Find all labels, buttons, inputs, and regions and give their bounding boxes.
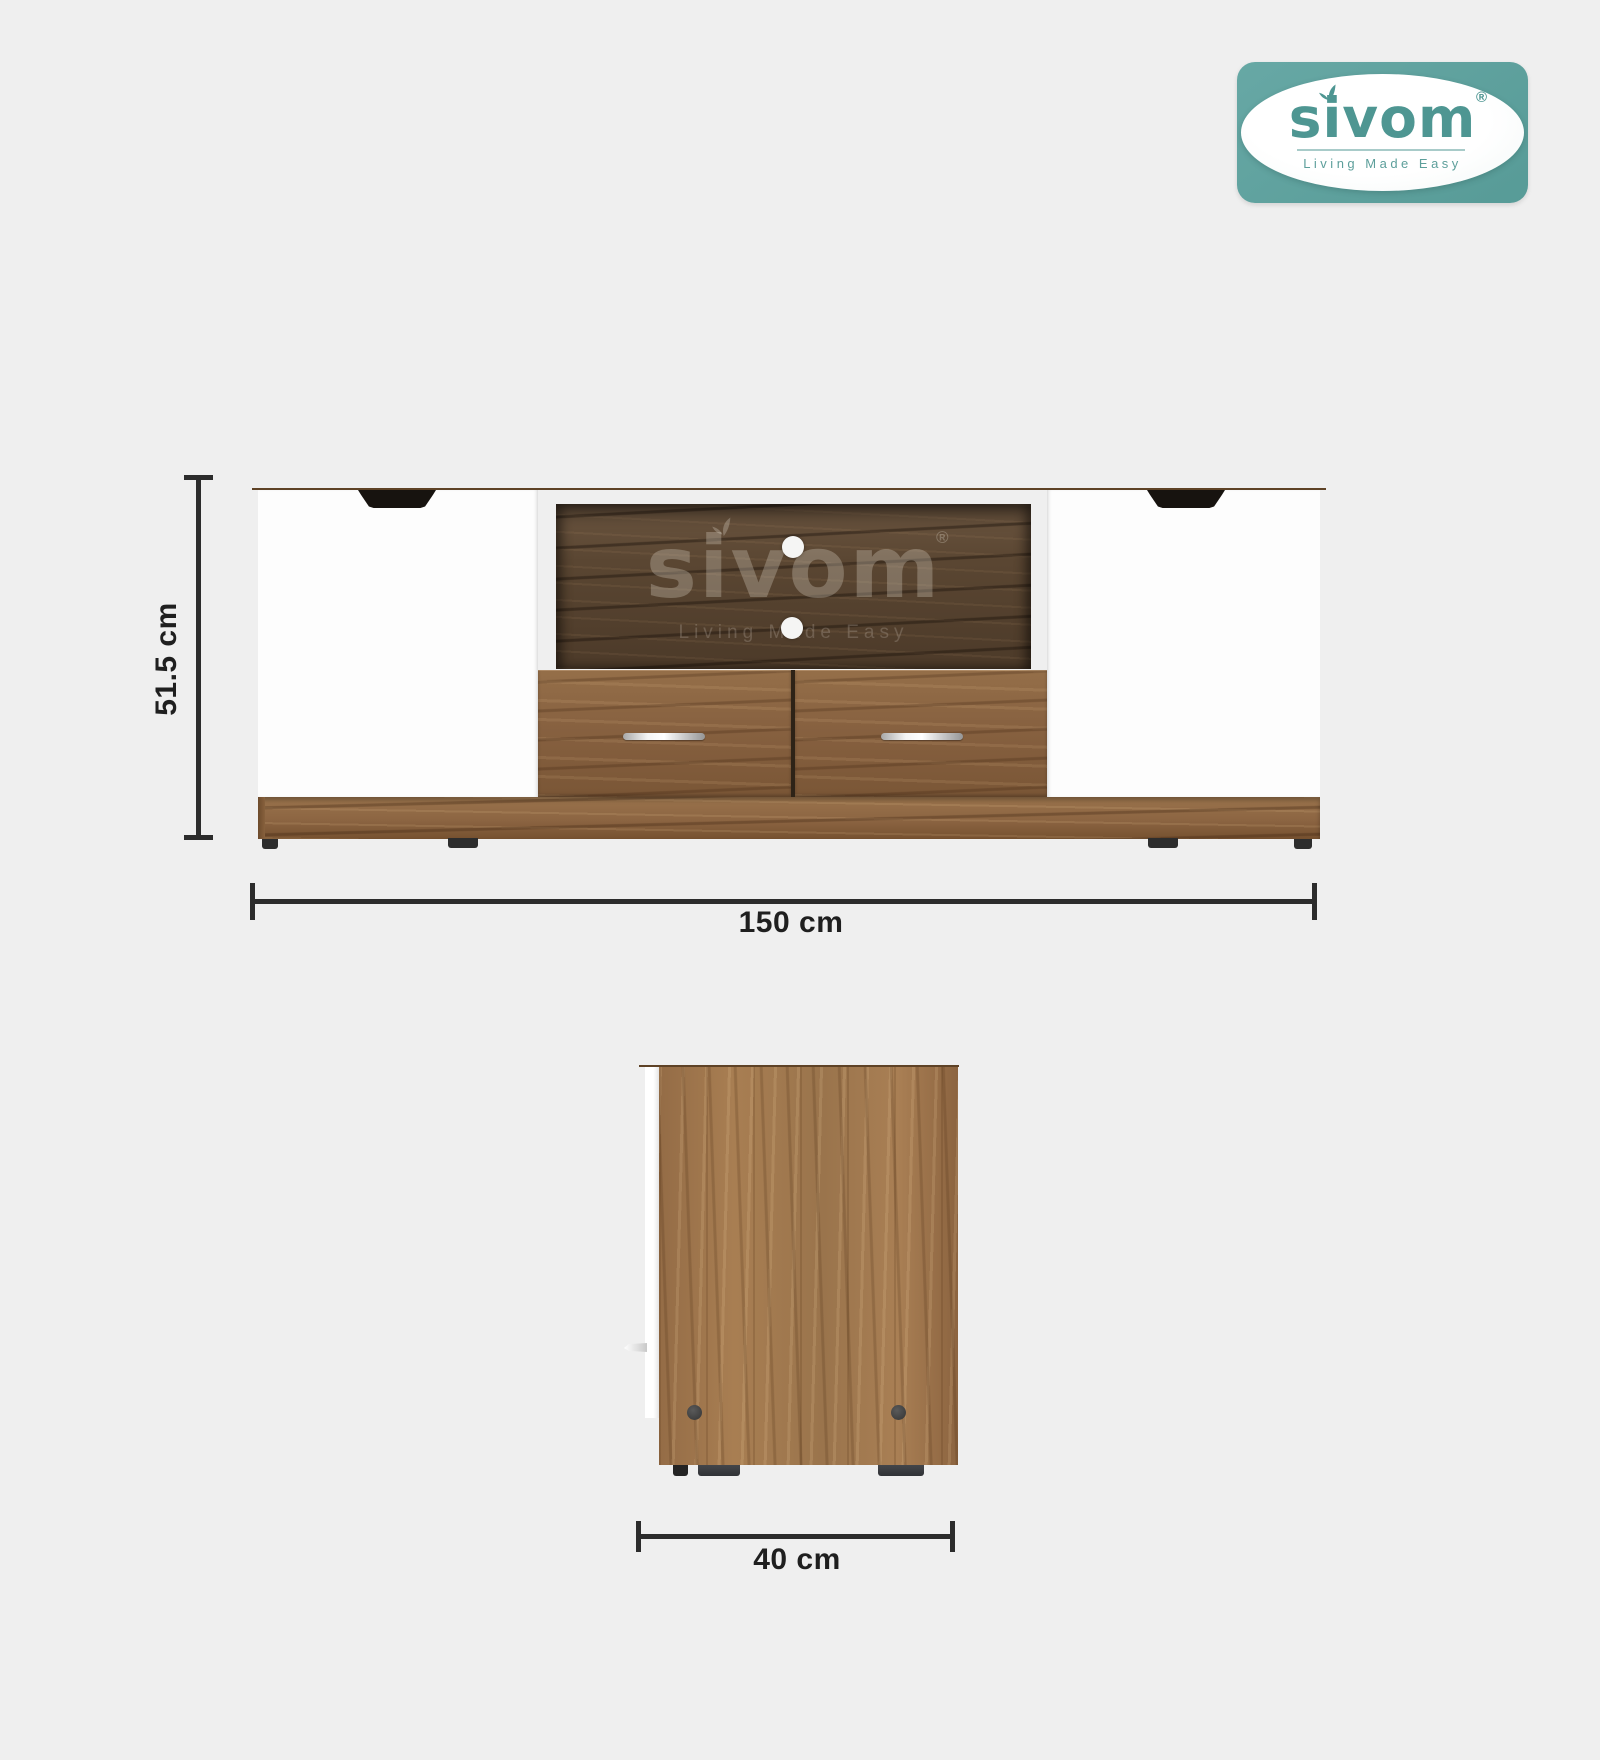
side-foot-2 xyxy=(698,1465,740,1476)
depth-dimension-cap-right xyxy=(950,1521,955,1552)
tv-unit-top-panel xyxy=(252,473,1326,490)
side-panel xyxy=(659,1067,958,1465)
shelf-watermark-registered: ® xyxy=(936,528,949,548)
front-foot-3 xyxy=(1148,838,1178,848)
side-foot-3 xyxy=(878,1465,924,1476)
side-view: 40 cm xyxy=(0,1000,1600,1700)
side-top-panel xyxy=(639,1054,959,1067)
watermark-leaf-icon xyxy=(709,515,735,547)
height-dimension-line xyxy=(196,477,201,838)
open-shelf: sivom ® Living Made Easy xyxy=(556,504,1031,669)
side-foot-1 xyxy=(673,1465,688,1476)
shelf-watermark-brand: sivom xyxy=(556,518,1031,618)
depth-dimension-label: 40 cm xyxy=(697,1543,897,1577)
front-foot-2 xyxy=(448,838,478,848)
left-door xyxy=(258,490,538,797)
plinth-left-edge xyxy=(258,797,265,839)
right-door xyxy=(1047,490,1320,797)
side-door-edge xyxy=(645,1067,659,1418)
right-door-handle-cutout xyxy=(1147,490,1225,508)
drawer-right-handle xyxy=(881,733,963,740)
depth-dimension-cap-left xyxy=(636,1521,641,1552)
cable-hole-top xyxy=(782,536,804,558)
front-foot-1 xyxy=(262,839,278,849)
drawer-left-handle xyxy=(623,733,705,740)
depth-dimension-line xyxy=(638,1534,955,1539)
width-dimension-cap-left xyxy=(250,883,255,920)
height-dimension-cap-bottom xyxy=(184,835,213,840)
width-dimension-cap-right xyxy=(1312,883,1317,920)
height-dimension-label: 51.5 cm xyxy=(150,569,184,749)
side-handle-profile xyxy=(624,1343,647,1352)
left-door-handle-cutout xyxy=(358,490,436,508)
product-dimension-image: sivom ® Living Made Easy 51.5 cm sivom xyxy=(0,0,1600,1760)
plinth xyxy=(258,797,1320,839)
cable-hole-bottom xyxy=(781,617,803,639)
height-dimension-cap-top xyxy=(184,475,213,480)
front-view: 51.5 cm sivom ® Living Made Easy xyxy=(0,0,1600,960)
width-dimension-line xyxy=(252,899,1317,904)
width-dimension-label: 150 cm xyxy=(691,906,891,940)
screw-cap-left xyxy=(687,1405,702,1420)
front-foot-4 xyxy=(1294,839,1312,849)
screw-cap-right xyxy=(891,1405,906,1420)
